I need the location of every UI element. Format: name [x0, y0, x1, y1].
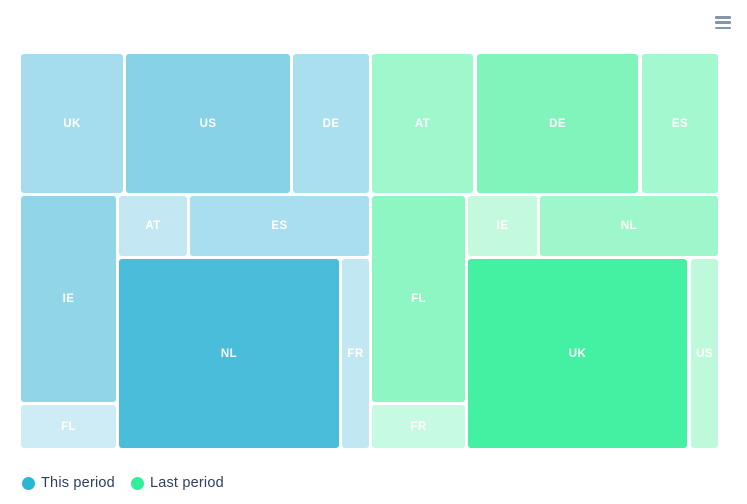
- tile-label: IE: [63, 293, 75, 305]
- treemap-tile-this-period-nl[interactable]: NL: [119, 259, 339, 448]
- tile-label: NL: [621, 220, 637, 232]
- tile-label: UK: [63, 118, 80, 130]
- treemap-tile-this-period-us[interactable]: US: [126, 54, 290, 193]
- tile-label: ES: [271, 220, 287, 232]
- tile-label: UK: [569, 348, 586, 360]
- tile-label: IE: [497, 220, 509, 232]
- tile-label: DE: [549, 118, 566, 130]
- tile-label: ES: [672, 118, 688, 130]
- treemap-tile-last-period-fl[interactable]: FL: [372, 196, 465, 402]
- treemap-tile-last-period-uk[interactable]: UK: [468, 259, 687, 448]
- treemap-tile-this-period-de[interactable]: DE: [293, 54, 369, 193]
- treemap-tile-last-period-us[interactable]: US: [691, 259, 718, 448]
- tile-label: DE: [323, 118, 340, 130]
- treemap-tile-last-period-ie[interactable]: IE: [468, 196, 537, 256]
- treemap-chart-page: UKUSDEIEATESNLFRFLATDEESFLIENLUKUSFR Thi…: [0, 0, 747, 504]
- treemap-tile-this-period-uk[interactable]: UK: [21, 54, 123, 193]
- tile-label: US: [696, 348, 713, 360]
- chart-legend: This period Last period: [22, 475, 224, 491]
- treemap-tile-this-period-at[interactable]: AT: [119, 196, 187, 256]
- treemap-tile-last-period-de[interactable]: DE: [477, 54, 638, 193]
- hamburger-icon: [715, 16, 731, 19]
- legend-label: Last period: [150, 475, 224, 491]
- tile-label: AT: [145, 220, 160, 232]
- tile-label: FR: [410, 421, 426, 433]
- tile-label: FR: [347, 348, 363, 360]
- treemap-tile-last-period-nl[interactable]: NL: [540, 196, 718, 256]
- treemap-tile-last-period-es[interactable]: ES: [642, 54, 718, 193]
- tile-label: US: [200, 118, 217, 130]
- treemap-chart: UKUSDEIEATESNLFRFLATDEESFLIENLUKUSFR: [20, 53, 719, 449]
- legend-item-this-period[interactable]: This period: [22, 475, 115, 491]
- tile-label: NL: [221, 348, 237, 360]
- this-period-dot-icon: [22, 477, 35, 490]
- treemap-tile-this-period-fl[interactable]: FL: [21, 405, 116, 448]
- tile-label: FL: [61, 421, 76, 433]
- treemap-tile-this-period-es[interactable]: ES: [190, 196, 369, 256]
- tile-label: AT: [415, 118, 430, 130]
- treemap-tile-this-period-ie[interactable]: IE: [21, 196, 116, 402]
- tile-label: FL: [411, 293, 426, 305]
- last-period-dot-icon: [131, 477, 144, 490]
- treemap-tile-last-period-fr[interactable]: FR: [372, 405, 465, 448]
- legend-item-last-period[interactable]: Last period: [131, 475, 224, 491]
- hamburger-menu-button[interactable]: [715, 16, 731, 29]
- legend-label: This period: [41, 475, 115, 491]
- treemap-tile-this-period-fr[interactable]: FR: [342, 259, 369, 448]
- treemap-tile-last-period-at[interactable]: AT: [372, 54, 473, 193]
